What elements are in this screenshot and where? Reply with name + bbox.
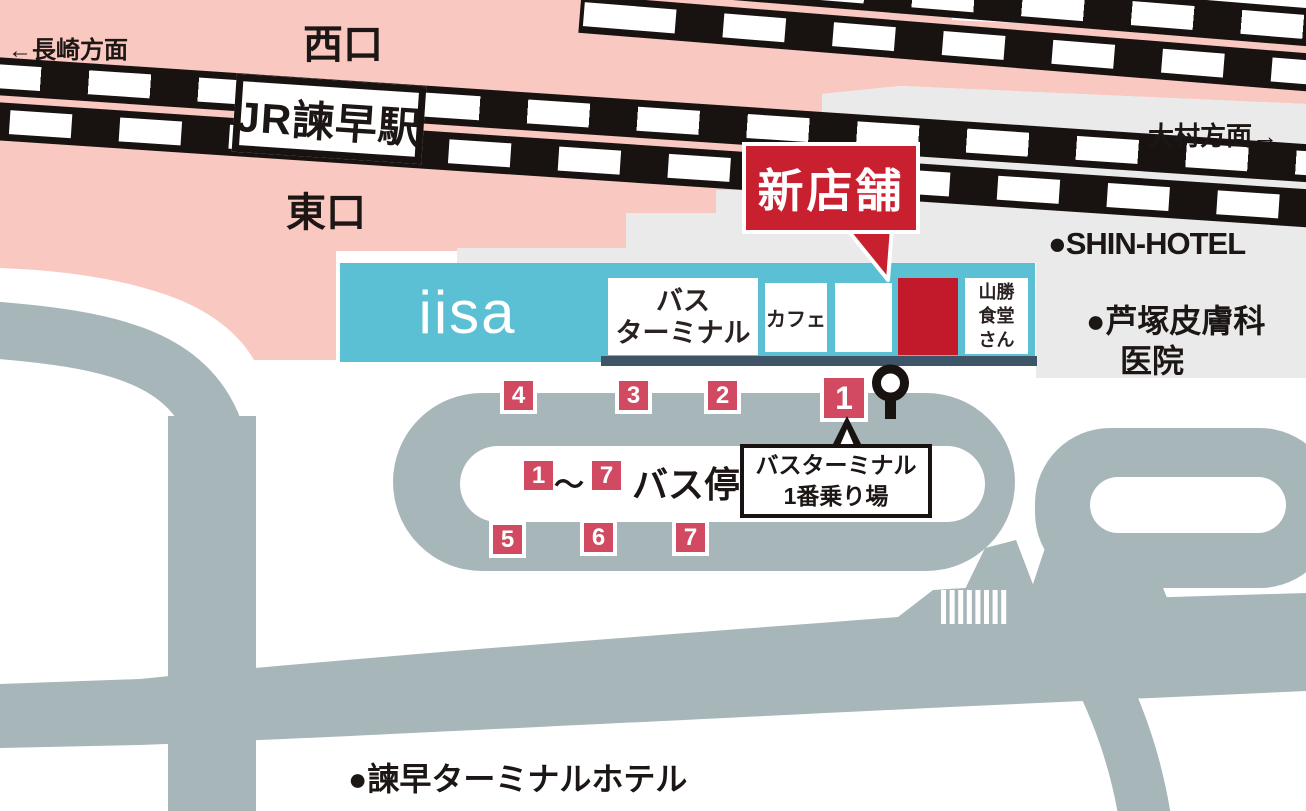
legend-tilde: ～ bbox=[554, 460, 584, 504]
bus-stop-badge-6: 6 bbox=[580, 519, 617, 556]
west-exit-label: 西口 bbox=[303, 12, 383, 70]
bus-stop-badge-2: 2 bbox=[704, 377, 741, 414]
bus-terminal-line1: バス bbox=[656, 285, 710, 317]
bus-stop-badge-5: 5 bbox=[489, 521, 526, 558]
station-front-road bbox=[0, 330, 212, 424]
terminal-hotel-label: ●諫早ターミナルホテル bbox=[348, 754, 687, 800]
bus-terminal-line2: ターミナル bbox=[616, 317, 751, 349]
bus-terminal-building: バス ターミナル bbox=[608, 278, 758, 355]
shin-hotel-label: ●SHIN-HOTEL bbox=[1048, 226, 1245, 262]
building-shadow bbox=[601, 356, 1037, 366]
legend-badge-from: 1 bbox=[520, 457, 557, 494]
iisa-building-label: iisa bbox=[405, 276, 530, 348]
bus-stop-badge-3: 3 bbox=[615, 377, 652, 414]
new-store-callout-text: 新店舗 bbox=[744, 144, 918, 232]
bus-stop-badge-7: 7 bbox=[672, 519, 709, 556]
ashizuka-clinic-label-line2: 医院 bbox=[1120, 336, 1184, 382]
station-area-map: JR諫早駅 ←長崎方面 大村方面→ 西口 東口 iisa バス ターミナル カフ… bbox=[0, 0, 1306, 811]
right-loop-island bbox=[1090, 477, 1286, 533]
yamakatsu-line3: さん bbox=[979, 328, 1015, 352]
platform-callout-line1: バスターミナル bbox=[756, 450, 917, 481]
legend-badge-to: 7 bbox=[588, 457, 625, 494]
nagasaki-direction-label: ←長崎方面 bbox=[8, 30, 128, 65]
new-store-unit bbox=[898, 278, 958, 355]
omura-direction-label: 大村方面→ bbox=[1148, 116, 1278, 153]
bus-stop-badge-4: 4 bbox=[500, 377, 537, 414]
cafe-label: カフェ bbox=[766, 303, 826, 332]
cafe-building: カフェ bbox=[765, 283, 827, 352]
station-name: JR諫早駅 bbox=[235, 82, 423, 155]
yamakatsu-building: 山勝 食堂 さん bbox=[965, 278, 1028, 354]
platform-callout-line2: 1番乗り場 bbox=[784, 481, 889, 512]
legend-bus-stop-label: バス停 bbox=[632, 456, 740, 508]
east-exit-label: 東口 bbox=[286, 180, 366, 238]
callout-tail bbox=[846, 228, 892, 280]
station-sign: JR諫早駅 bbox=[232, 74, 427, 164]
platform-callout: バスターミナル 1番乗り場 bbox=[740, 444, 932, 518]
yamakatsu-line2: 食堂 bbox=[979, 304, 1015, 328]
vacant-unit bbox=[835, 283, 892, 352]
yamakatsu-line1: 山勝 bbox=[979, 280, 1015, 304]
